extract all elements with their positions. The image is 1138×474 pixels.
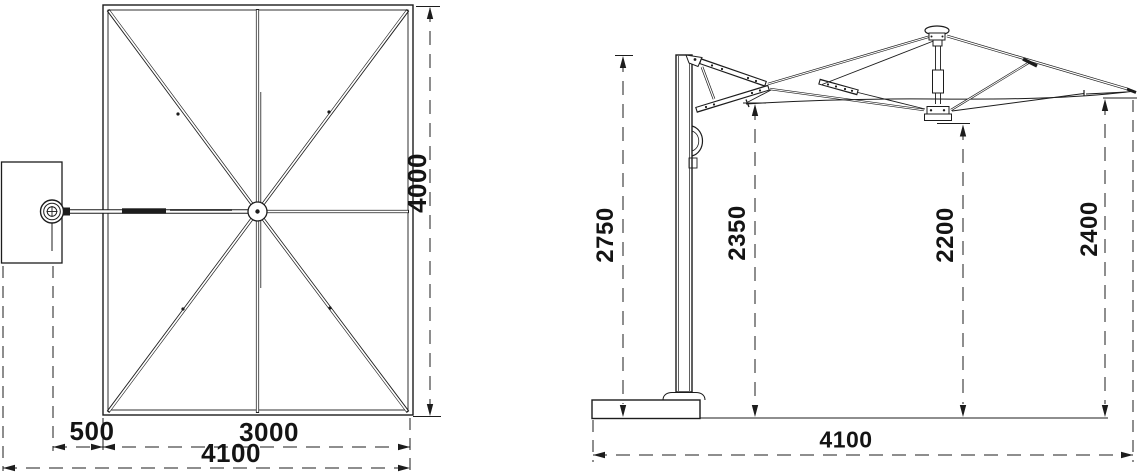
dim-label-overall-span: 4100 [819, 429, 872, 452]
dim-label-hub-clearance: 2200 [934, 207, 958, 262]
side-pole [676, 55, 703, 392]
plan-pole [41, 200, 64, 223]
dim-label-canopy-depth: 4000 [404, 153, 430, 213]
dim-label-overall-width: 4100 [201, 440, 261, 466]
side-view [592, 26, 1137, 462]
plan-dimensions [3, 7, 441, 472]
dim-label-pole-height: 2750 [594, 207, 618, 262]
dimension-drawing: 4000 500 3000 4100 2750 2350 2200 2400 4… [0, 0, 1138, 474]
side-hub-assembly [925, 26, 952, 121]
dim-label-edge-clearance-right: 2400 [1078, 201, 1102, 256]
dim-label-edge-clearance-left: 2350 [726, 205, 750, 260]
plan-hub [248, 202, 267, 221]
dim-label-pole-offset: 500 [70, 418, 115, 444]
drawing-canvas [0, 0, 1138, 474]
side-base [592, 393, 1108, 419]
plan-arm [61, 208, 249, 216]
plan-view [2, 5, 442, 471]
